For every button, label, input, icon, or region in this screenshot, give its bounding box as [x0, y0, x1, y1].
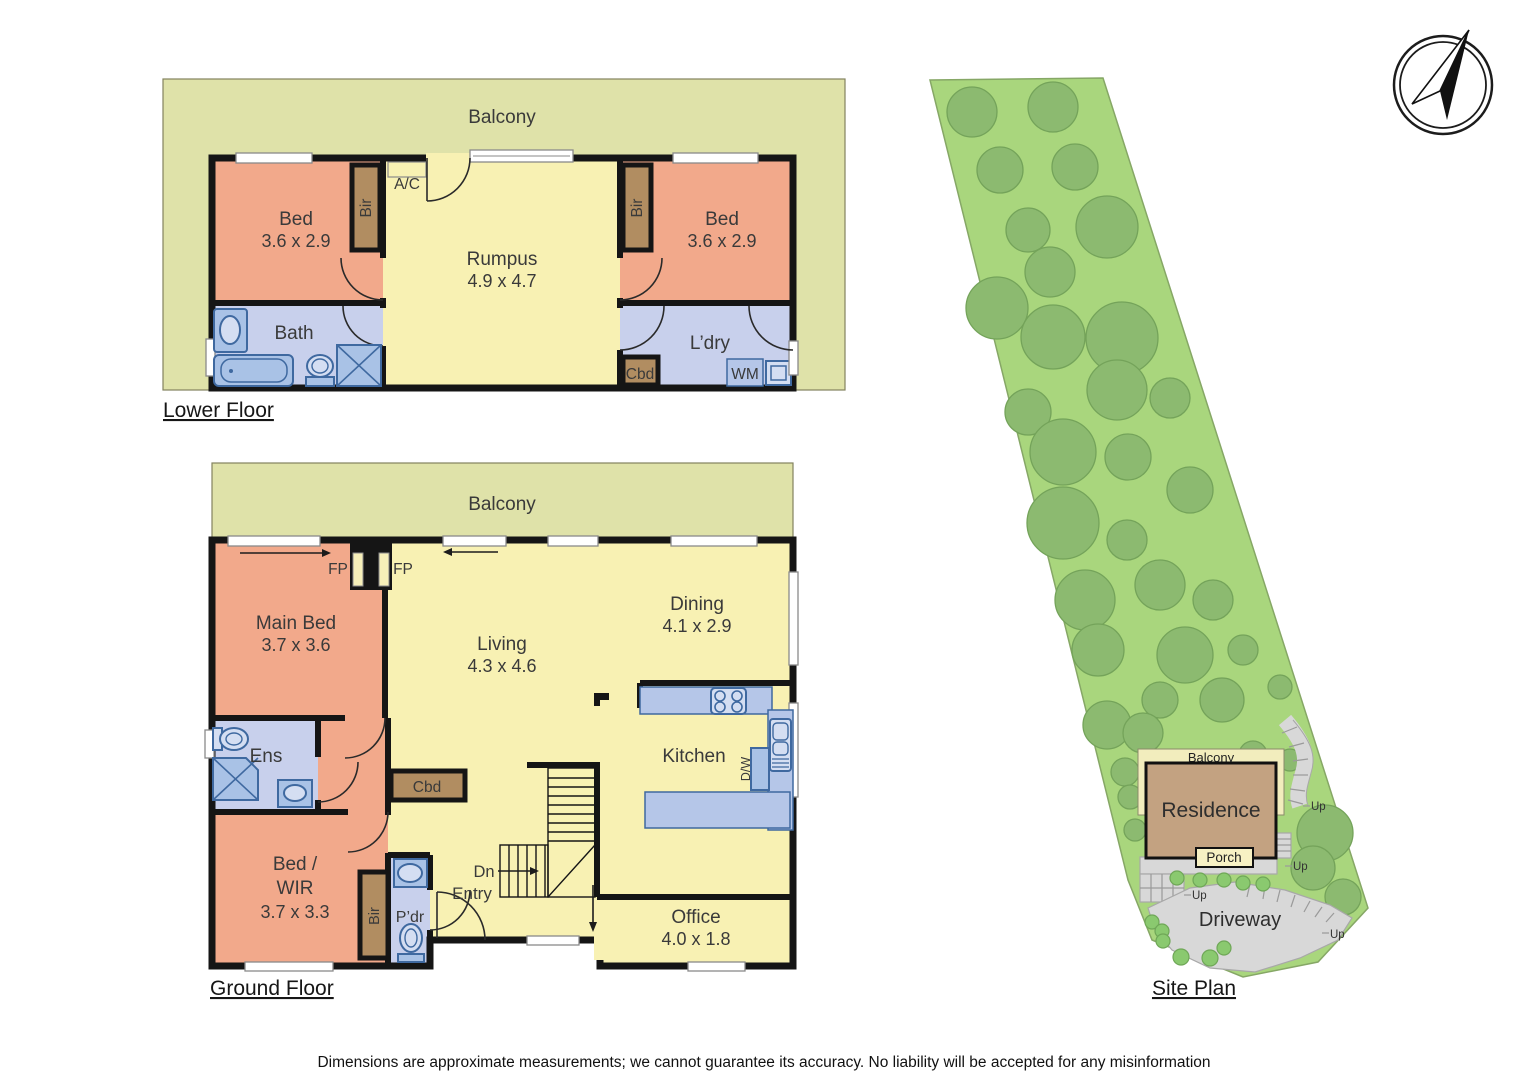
ac-label: A/C — [394, 176, 420, 193]
residence-label: Residence — [1161, 799, 1260, 822]
up-label-right: Up — [1293, 861, 1308, 873]
window — [789, 341, 798, 375]
living-label: Living — [477, 634, 527, 655]
porch-label: Porch — [1206, 850, 1241, 865]
floorplan-svg: Balcony — [0, 0, 1528, 1080]
bed-left-dims: 3.6 x 2.9 — [261, 231, 330, 251]
ldry-label: L’dry — [690, 333, 731, 354]
disclaimer-text: Dimensions are approximate measurements;… — [317, 1054, 1210, 1071]
bed-left-label: Bed — [279, 209, 313, 230]
floorplan-page: Balcony — [0, 0, 1528, 1080]
dining-label: Dining — [670, 594, 724, 615]
window — [789, 572, 798, 665]
window — [688, 962, 745, 971]
living-dims: 4.3 x 4.6 — [467, 656, 536, 676]
fp-left-label: FP — [328, 561, 348, 578]
fireplace-right — [379, 553, 389, 586]
kitchen-label: Kitchen — [662, 746, 725, 767]
north-compass-icon — [1394, 30, 1492, 134]
bed-hallway — [318, 718, 388, 812]
dn-label: Dn — [473, 863, 494, 881]
window — [548, 536, 598, 546]
dw-label: D/W — [739, 757, 753, 782]
entry-label: Entry — [452, 884, 492, 903]
window — [671, 536, 757, 546]
dishwasher — [751, 748, 769, 790]
bir-left-label: Bir — [358, 199, 375, 218]
bed-wir-dims: 3.7 x 3.3 — [260, 902, 329, 922]
fireplace-left — [353, 553, 363, 586]
bir-right-label: Bir — [629, 199, 646, 218]
office-label: Office — [671, 907, 720, 928]
bed-right-label: Bed — [705, 209, 739, 230]
site-plan: Balcony Residence Porch Up Up Up Up Driv… — [930, 78, 1368, 1000]
washing-machine-icon — [766, 361, 791, 385]
up-label-driveway: Up — [1330, 929, 1345, 941]
main-bed-label: Main Bed — [256, 613, 336, 634]
pdr-label: P’dr — [396, 909, 425, 926]
dining-dims: 4.1 x 2.9 — [662, 616, 731, 636]
wm-label: WM — [731, 366, 759, 383]
window — [527, 936, 579, 945]
rumpus-dims: 4.9 x 4.7 — [467, 271, 536, 291]
kitchen-bench — [640, 687, 772, 714]
ac-unit — [388, 162, 426, 177]
up-label-top: Up — [1311, 801, 1326, 813]
bath-label: Bath — [274, 323, 313, 344]
lower-floor-title: Lower Floor — [163, 399, 274, 422]
ground-floor-title: Ground Floor — [210, 977, 334, 1000]
cbd-label: Cbd — [626, 366, 654, 383]
toilet-icon — [400, 924, 422, 952]
bed-wir-label1: Bed / — [273, 854, 318, 875]
cbd-label: Cbd — [413, 779, 441, 796]
bed-right-dims: 3.6 x 2.9 — [687, 231, 756, 251]
window — [443, 536, 506, 546]
window — [245, 962, 333, 971]
lower-balcony-label: Balcony — [468, 107, 536, 128]
window — [228, 536, 320, 546]
rumpus-label: Rumpus — [467, 249, 538, 270]
lower-floor-plan: Balcony — [163, 79, 845, 422]
ground-balcony-label: Balcony — [468, 494, 536, 515]
window — [236, 153, 312, 163]
driveway-label: Driveway — [1199, 909, 1281, 931]
up-label-left: Up — [1192, 890, 1207, 902]
bir-ground-label: Bir — [367, 907, 383, 925]
kitchen-island — [645, 792, 790, 828]
main-bed-dims: 3.7 x 3.6 — [261, 635, 330, 655]
ground-floor-plan: Balcony — [205, 463, 798, 1000]
ens-label: Ens — [250, 746, 283, 767]
site-plan-title: Site Plan — [1152, 977, 1236, 1000]
fp-right-label: FP — [393, 561, 413, 578]
window — [673, 153, 758, 163]
bed-wir-label2: WIR — [277, 878, 314, 899]
office-dims: 4.0 x 1.8 — [661, 929, 730, 949]
